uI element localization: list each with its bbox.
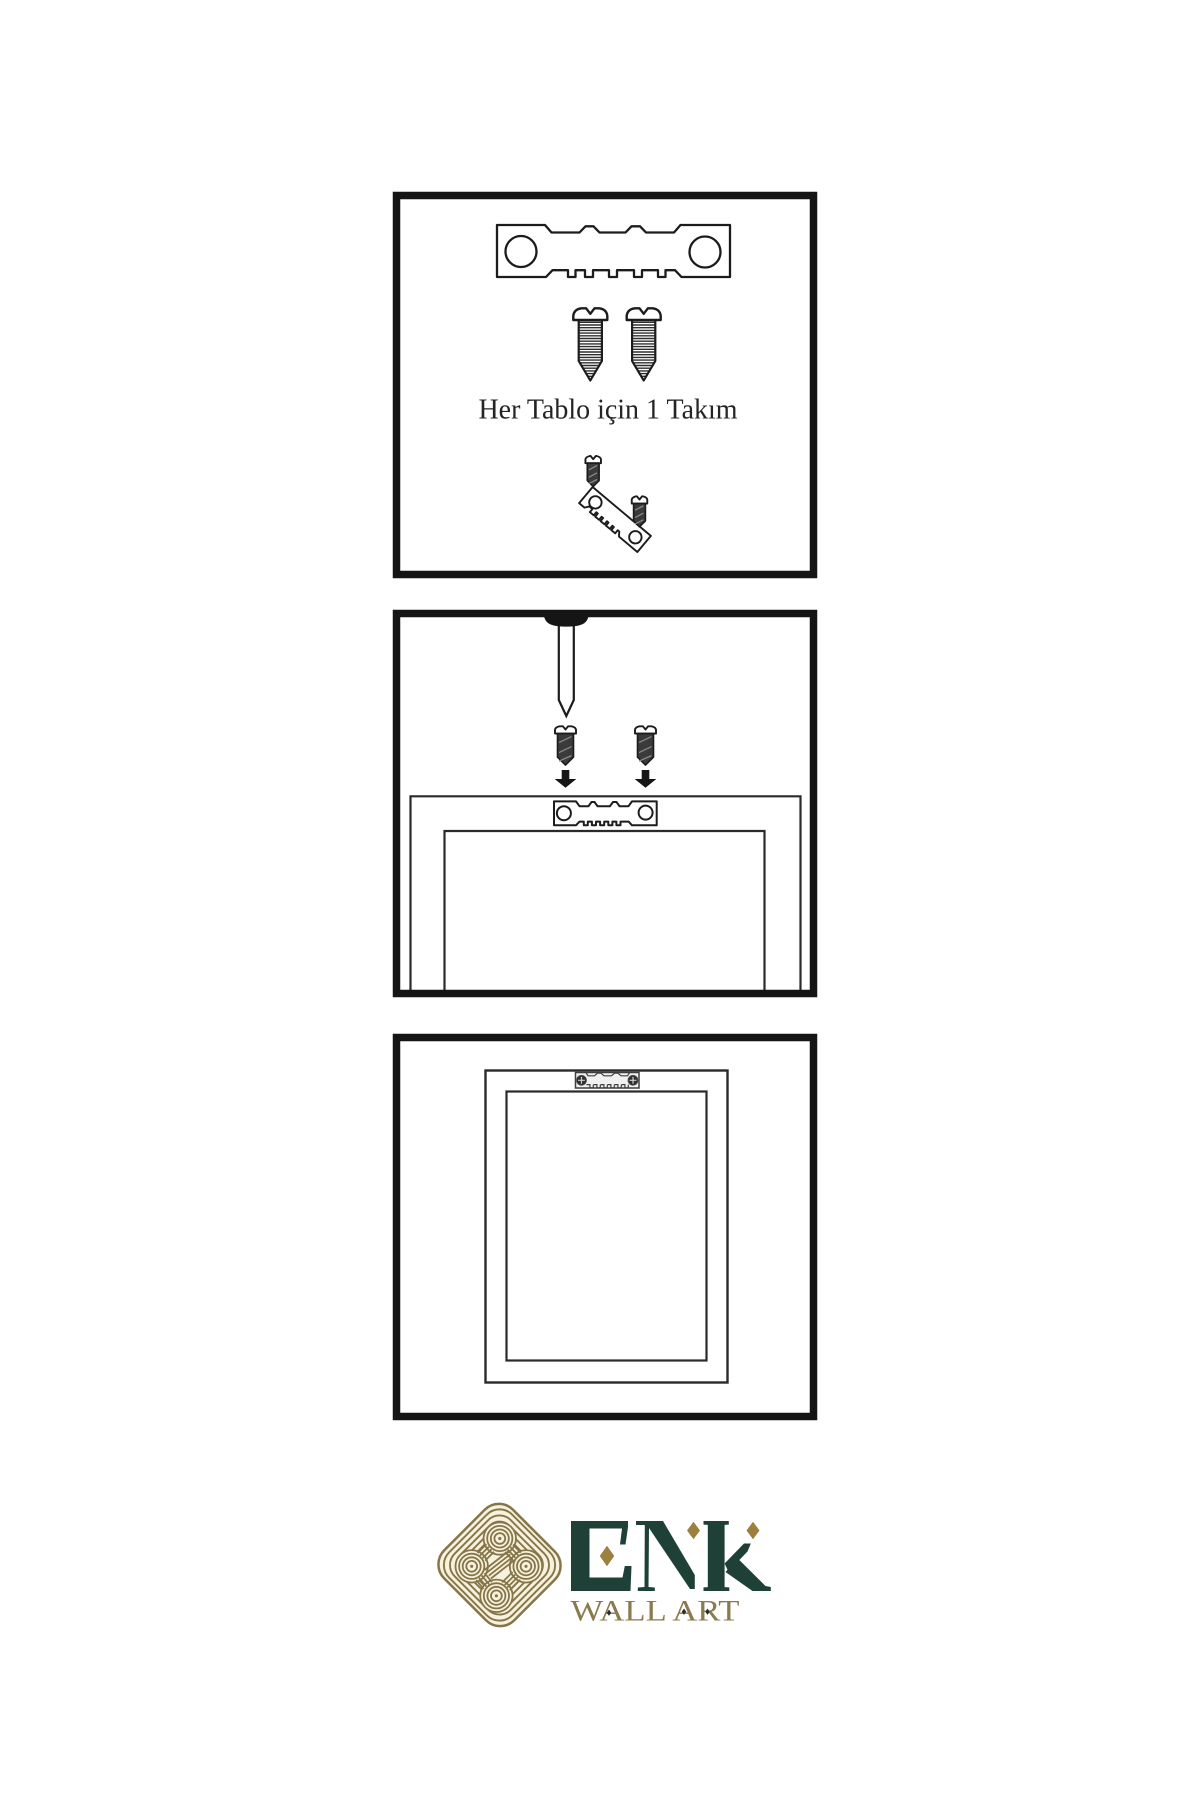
svg-text:WALL ART: WALL ART	[571, 1595, 740, 1628]
svg-text:Her Tablo için 1 Takım: Her Tablo için 1 Takım	[479, 395, 738, 426]
